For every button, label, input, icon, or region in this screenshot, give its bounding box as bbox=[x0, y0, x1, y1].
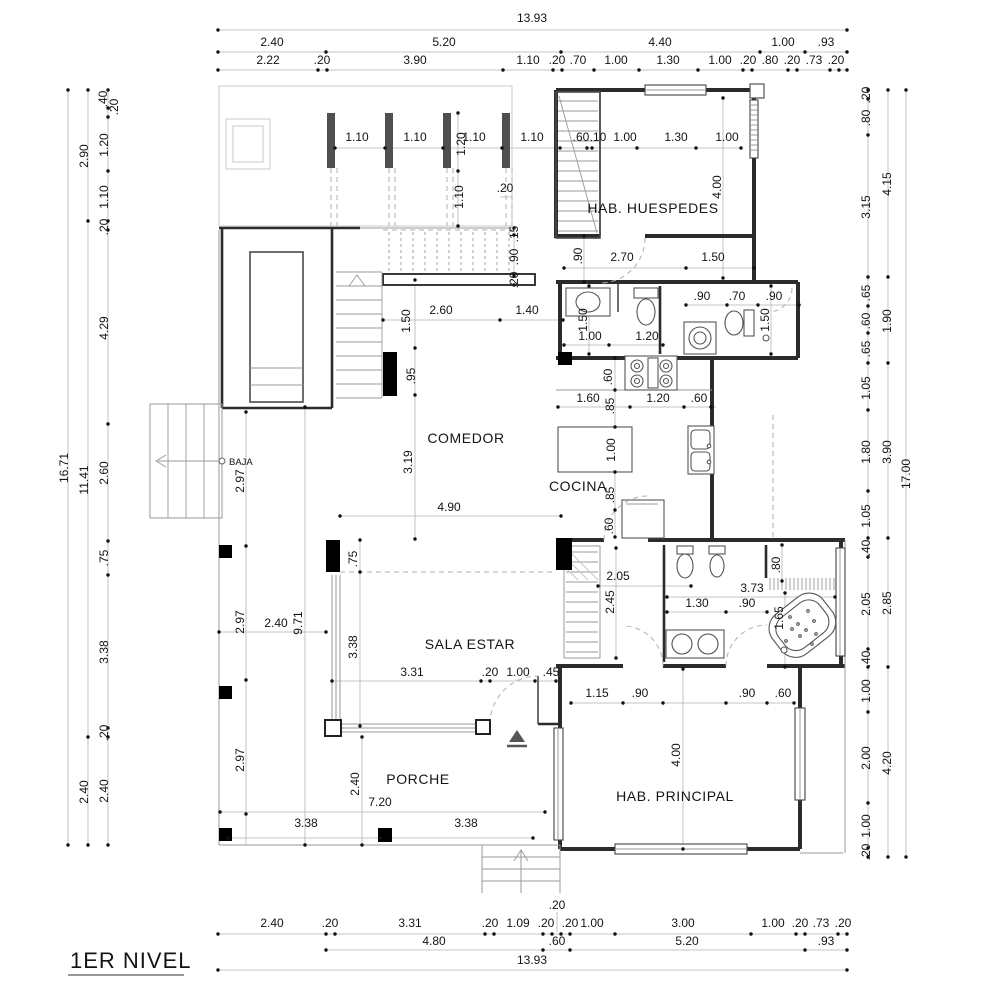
dim-tick bbox=[587, 284, 590, 287]
dim-label: .20 bbox=[562, 916, 579, 930]
dim-label: 2.40 bbox=[264, 616, 288, 630]
drain-icon bbox=[763, 335, 769, 341]
columns bbox=[219, 352, 572, 842]
dim-tick bbox=[558, 146, 561, 149]
dim-label: 2.85 bbox=[880, 591, 894, 615]
dim-tick bbox=[621, 701, 624, 704]
dim-tick bbox=[551, 68, 554, 71]
dim-tick bbox=[541, 932, 544, 935]
room-label-porche: PORCHE bbox=[386, 771, 450, 787]
dim-label: 2.60 bbox=[429, 303, 453, 317]
dim-label: 1.05 bbox=[859, 504, 873, 528]
dim-label: .93 bbox=[818, 934, 835, 948]
stair-exterior-baja bbox=[150, 404, 225, 518]
dim-label: 3.90 bbox=[880, 440, 894, 464]
dim-tick bbox=[696, 68, 699, 71]
dim-label: .20 bbox=[549, 53, 566, 67]
dim-label: 2.45 bbox=[603, 590, 617, 614]
dim-tick bbox=[303, 405, 306, 408]
dim-tick bbox=[780, 579, 783, 582]
dim-tick bbox=[613, 356, 616, 359]
stair-main bbox=[336, 272, 382, 398]
dim-label: .20 bbox=[538, 916, 555, 930]
dim-label: .20 bbox=[859, 843, 873, 860]
dim-label: .70 bbox=[729, 289, 746, 303]
dim-tick bbox=[721, 276, 724, 279]
dim-tick bbox=[562, 266, 565, 269]
dim-tick bbox=[803, 932, 806, 935]
dim-label: 1.00 bbox=[859, 679, 873, 703]
dim-label: 4.00 bbox=[710, 175, 724, 199]
dim-tick bbox=[324, 948, 327, 951]
dim-label: .20 bbox=[314, 53, 331, 67]
dim-tick bbox=[681, 667, 684, 670]
dim-label: .60 bbox=[573, 130, 590, 144]
dim-tick bbox=[845, 68, 848, 71]
dim-tick bbox=[66, 843, 69, 846]
dim-label: 1.00 bbox=[604, 53, 628, 67]
dimension-ticks bbox=[66, 28, 907, 971]
dim-tick bbox=[709, 405, 712, 408]
dim-label: 1.30 bbox=[685, 596, 709, 610]
dim-tick bbox=[456, 169, 459, 172]
dim-tick bbox=[216, 968, 219, 971]
dim-tick bbox=[330, 679, 333, 682]
dim-tick bbox=[585, 146, 588, 149]
dim-tick bbox=[613, 470, 616, 473]
dim-tick bbox=[333, 146, 336, 149]
floor-plan-drawing: 13.93 2.40 5.20 4.40 1.00 .93 2.22 .20 3… bbox=[0, 0, 1000, 1000]
dim-label: .90 bbox=[507, 248, 521, 265]
dim-tick bbox=[533, 679, 536, 682]
toilet-icon bbox=[725, 311, 743, 335]
dim-label: 1.10 bbox=[345, 130, 369, 144]
dim-label: 3.31 bbox=[398, 916, 422, 930]
dim-label: 1.10 bbox=[520, 130, 544, 144]
dim-tick bbox=[836, 932, 839, 935]
dim-tick bbox=[845, 50, 848, 53]
dim-label: 4.40 bbox=[648, 35, 672, 49]
dim-tick bbox=[324, 630, 327, 633]
dim-label: 1.20 bbox=[97, 133, 111, 157]
dim-tick bbox=[845, 948, 848, 951]
dim-tick bbox=[866, 647, 869, 650]
dim-tick bbox=[244, 544, 247, 547]
dim-tick bbox=[614, 546, 617, 549]
dim-label: .20 bbox=[322, 916, 339, 930]
dim-tick bbox=[613, 535, 616, 538]
dim-tick bbox=[613, 508, 616, 511]
dim-tick bbox=[739, 146, 742, 149]
dim-tick bbox=[886, 88, 889, 91]
dim-tick bbox=[66, 88, 69, 91]
dim-tick bbox=[483, 932, 486, 935]
entry-marker-icon bbox=[507, 730, 527, 746]
dim-label: 1.00 bbox=[715, 130, 739, 144]
dim-tick bbox=[86, 219, 89, 222]
dim-tick bbox=[106, 422, 109, 425]
dim-label: .20 bbox=[835, 916, 852, 930]
dim-tick bbox=[828, 68, 831, 71]
dim-tick bbox=[803, 948, 806, 951]
dim-label: 17.00 bbox=[899, 459, 913, 489]
stair-up-arrow-icon bbox=[349, 275, 365, 286]
dim-label: .20 bbox=[507, 271, 521, 288]
dim-tick bbox=[590, 146, 593, 149]
dim-tick bbox=[413, 346, 416, 349]
dim-tick bbox=[780, 543, 783, 546]
room-label-hab-huespedes: HAB. HUESPEDES bbox=[587, 200, 718, 216]
dim-label: 3.15 bbox=[859, 195, 873, 219]
stair-direction-label: BAJA bbox=[229, 457, 253, 468]
dim-tick bbox=[441, 146, 444, 149]
dim-tick bbox=[866, 536, 869, 539]
dim-label: 4.20 bbox=[880, 751, 894, 775]
dim-tick bbox=[866, 133, 869, 136]
dim-label: 1.00 bbox=[578, 329, 602, 343]
dim-label: .80 bbox=[859, 109, 873, 126]
dim-tick bbox=[413, 278, 416, 281]
dim-label: .20 bbox=[784, 53, 801, 67]
dim-label: 1.00 bbox=[859, 814, 873, 838]
dim-tick bbox=[582, 234, 585, 237]
dim-label: .20 bbox=[482, 916, 499, 930]
dim-label: .40 bbox=[859, 650, 873, 667]
dim-tick bbox=[378, 836, 381, 839]
dim-tick bbox=[786, 68, 789, 71]
dim-tick bbox=[613, 425, 616, 428]
dim-tick bbox=[904, 88, 907, 91]
dim-label: .90 bbox=[694, 289, 711, 303]
dim-tick bbox=[554, 679, 557, 682]
dim-label: 2.40 bbox=[260, 916, 284, 930]
dim-tick bbox=[500, 146, 503, 149]
toilet-tank bbox=[634, 288, 658, 298]
dim-label: 1.80 bbox=[859, 440, 873, 464]
dim-label: 3.38 bbox=[346, 635, 360, 659]
dim-label: .40 bbox=[859, 539, 873, 556]
dim-tick bbox=[724, 610, 727, 613]
dim-tick bbox=[613, 388, 616, 391]
dim-label: 1.15 bbox=[585, 686, 609, 700]
dim-label: 1.09 bbox=[506, 916, 530, 930]
dim-tick bbox=[560, 68, 563, 71]
dim-tick bbox=[358, 538, 361, 541]
toilet-icon bbox=[677, 554, 693, 578]
dim-tick bbox=[689, 584, 692, 587]
dim-label: .60 bbox=[549, 934, 566, 948]
dim-tick bbox=[324, 932, 327, 935]
dim-label: .60 bbox=[602, 517, 616, 534]
dim-tick bbox=[866, 710, 869, 713]
dim-label: .20 bbox=[740, 53, 757, 67]
dim-tick bbox=[333, 932, 336, 935]
dim-tick bbox=[492, 932, 495, 935]
dim-label: 2.05 bbox=[859, 592, 873, 616]
dim-label: 16.71 bbox=[57, 453, 71, 483]
dim-label: 1.00 bbox=[506, 665, 530, 679]
dim-tick bbox=[106, 843, 109, 846]
dim-label: .60 bbox=[775, 686, 792, 700]
dim-label: 1.30 bbox=[664, 130, 688, 144]
dim-tick bbox=[845, 968, 848, 971]
dim-label: 2.60 bbox=[97, 461, 111, 485]
dim-label: 3.38 bbox=[454, 816, 478, 830]
dim-tick bbox=[749, 932, 752, 935]
dim-tick bbox=[613, 932, 616, 935]
dim-tick bbox=[106, 169, 109, 172]
dim-label: 4.29 bbox=[97, 316, 111, 340]
dim-label: .93 bbox=[818, 35, 835, 49]
dim-tick bbox=[244, 678, 247, 681]
dim-label: 2.00 bbox=[859, 746, 873, 770]
dim-tick bbox=[886, 361, 889, 364]
dim-label: 2.22 bbox=[256, 53, 280, 67]
dim-label: .80 bbox=[762, 53, 779, 67]
toilet-icon bbox=[637, 299, 655, 325]
dim-label: .73 bbox=[813, 916, 830, 930]
dim-tick bbox=[592, 68, 595, 71]
dim-tick bbox=[769, 284, 772, 287]
dim-tick bbox=[783, 665, 786, 668]
dim-tick bbox=[794, 932, 797, 935]
dim-label: .65 bbox=[859, 340, 873, 357]
dim-tick bbox=[531, 836, 534, 839]
dim-tick bbox=[217, 630, 220, 633]
dim-tick bbox=[752, 266, 755, 269]
dim-tick bbox=[413, 537, 416, 540]
dim-tick bbox=[86, 88, 89, 91]
dim-label: .95 bbox=[404, 367, 418, 384]
dim-label: 1.00 bbox=[613, 130, 637, 144]
dim-label: 2.05 bbox=[606, 569, 630, 583]
dim-label: .80 bbox=[769, 556, 783, 573]
dim-tick bbox=[218, 810, 221, 813]
dim-tick bbox=[795, 68, 798, 71]
dim-tick bbox=[886, 855, 889, 858]
dim-tick bbox=[614, 656, 617, 659]
dim-tick bbox=[568, 932, 571, 935]
kitchen-island bbox=[558, 427, 632, 472]
dim-tick bbox=[769, 352, 772, 355]
toilet-tank bbox=[744, 310, 754, 336]
dim-label: 1.65 bbox=[772, 606, 786, 630]
dim-label: 4.90 bbox=[437, 500, 461, 514]
dim-tick bbox=[543, 810, 546, 813]
dim-tick bbox=[765, 701, 768, 704]
dim-tick bbox=[413, 393, 416, 396]
dim-label: 1.50 bbox=[399, 309, 413, 333]
dim-label: 1.20 bbox=[646, 391, 670, 405]
dim-label: 1.00 bbox=[580, 916, 604, 930]
dim-tick bbox=[562, 343, 565, 346]
dim-tick bbox=[866, 801, 869, 804]
dim-tick bbox=[845, 28, 848, 31]
porch-post bbox=[325, 720, 341, 736]
dim-label: 3.31 bbox=[400, 665, 424, 679]
dim-tick bbox=[721, 96, 724, 99]
sink-icon bbox=[672, 634, 692, 654]
dim-tick bbox=[86, 735, 89, 738]
dim-label: 7.20 bbox=[368, 795, 392, 809]
dim-label: 9.71 bbox=[291, 611, 305, 635]
dim-label: 1.10 bbox=[452, 185, 466, 209]
dim-label: .90 bbox=[571, 247, 585, 264]
dim-tick bbox=[866, 304, 869, 307]
dim-tick bbox=[741, 68, 744, 71]
dim-tick bbox=[694, 146, 697, 149]
dim-tick bbox=[587, 352, 590, 355]
dim-label: .20 bbox=[482, 665, 499, 679]
dim-label: 2.40 bbox=[77, 780, 91, 804]
dim-tick bbox=[86, 843, 89, 846]
dim-tick bbox=[541, 948, 544, 951]
dim-label: 1.90 bbox=[880, 309, 894, 333]
dim-tick bbox=[360, 735, 363, 738]
dim-label: .10 bbox=[590, 130, 607, 144]
dim-tick bbox=[886, 536, 889, 539]
dim-label: 2.70 bbox=[610, 250, 634, 264]
porch-post bbox=[476, 720, 490, 734]
dim-label: .60 bbox=[859, 312, 873, 329]
floor-plan-canvas: 13.93 2.40 5.20 4.40 1.00 .93 2.22 .20 3… bbox=[0, 0, 1000, 1000]
plan-title: 1ER NIVEL bbox=[70, 948, 192, 973]
dim-tick bbox=[556, 405, 559, 408]
dim-label: .20 bbox=[97, 218, 111, 235]
dim-label: .45 bbox=[543, 665, 560, 679]
dim-tick bbox=[725, 303, 728, 306]
dim-tick bbox=[837, 68, 840, 71]
dim-label: 1.05 bbox=[859, 376, 873, 400]
dim-tick bbox=[886, 665, 889, 668]
dim-label: 3.00 bbox=[671, 916, 695, 930]
dim-tick bbox=[866, 275, 869, 278]
dim-label: 2.40 bbox=[97, 779, 111, 803]
dim-tick bbox=[797, 303, 800, 306]
dim-label: 1.30 bbox=[656, 53, 680, 67]
dim-tick bbox=[216, 50, 219, 53]
dim-label: 3.73 bbox=[740, 581, 764, 595]
dim-label: .90 bbox=[739, 596, 756, 610]
dim-label: .75 bbox=[97, 549, 111, 566]
dim-tick bbox=[792, 701, 795, 704]
dim-tick bbox=[681, 847, 684, 850]
dim-tick bbox=[684, 303, 687, 306]
dimension-lines bbox=[68, 30, 906, 970]
dim-tick bbox=[607, 343, 610, 346]
room-label-cocina: COCINA bbox=[549, 478, 607, 494]
dim-tick bbox=[106, 539, 109, 542]
dim-tick bbox=[866, 331, 869, 334]
dim-tick bbox=[244, 410, 247, 413]
dim-tick bbox=[682, 405, 685, 408]
dim-tick bbox=[635, 146, 638, 149]
dim-tick bbox=[783, 591, 786, 594]
dim-tick bbox=[244, 812, 247, 815]
closet bbox=[250, 252, 303, 402]
kitchen bbox=[558, 356, 714, 538]
dim-tick bbox=[845, 932, 848, 935]
dim-tick bbox=[381, 318, 384, 321]
dim-label: 2.40 bbox=[348, 772, 362, 796]
room-label-hab-principal: HAB. PRINCIPAL bbox=[616, 788, 734, 804]
dim-tick bbox=[661, 701, 664, 704]
dim-label: 1.10 bbox=[516, 53, 540, 67]
dim-tick bbox=[456, 224, 459, 227]
dim-label: 2.90 bbox=[77, 144, 91, 168]
dim-label: 13.93 bbox=[517, 953, 547, 967]
dim-tick bbox=[383, 146, 386, 149]
dim-label: 3.38 bbox=[294, 816, 318, 830]
dim-label: .70 bbox=[570, 53, 587, 67]
dim-label: .20 bbox=[859, 86, 873, 103]
dim-label: .20 bbox=[828, 53, 845, 67]
dim-label: 2.97 bbox=[233, 610, 247, 634]
dim-tick bbox=[684, 266, 687, 269]
dim-tick bbox=[358, 570, 361, 573]
dim-tick bbox=[665, 610, 668, 613]
dim-label: .20 bbox=[497, 181, 514, 195]
dim-label: 3.19 bbox=[401, 450, 415, 474]
dim-label: .60 bbox=[691, 391, 708, 405]
dim-tick bbox=[665, 595, 668, 598]
dim-label: 13.93 bbox=[517, 11, 547, 25]
dim-label: 5.20 bbox=[432, 35, 456, 49]
dim-label: 1.40 bbox=[515, 303, 539, 317]
dim-tick bbox=[216, 932, 219, 935]
room-label-sala-estar: SALA ESTAR bbox=[425, 636, 516, 652]
dim-tick bbox=[886, 275, 889, 278]
dim-tick bbox=[637, 68, 640, 71]
dim-tick bbox=[498, 318, 501, 321]
dim-label: .85 bbox=[603, 397, 617, 414]
dim-tick bbox=[904, 855, 907, 858]
dim-label: 4.80 bbox=[422, 934, 446, 948]
dim-tick bbox=[833, 595, 836, 598]
dim-label: .15 bbox=[507, 225, 521, 242]
sink-icon bbox=[698, 634, 718, 654]
dim-label: 1.00 bbox=[708, 53, 732, 67]
dim-tick bbox=[303, 843, 306, 846]
dim-label: 1.20 bbox=[635, 329, 659, 343]
dim-label: 3.38 bbox=[97, 640, 111, 664]
dim-tick bbox=[582, 280, 585, 283]
dim-tick bbox=[569, 701, 572, 704]
dim-label: 1.50 bbox=[701, 250, 725, 264]
stair-upper-run-dashed bbox=[389, 232, 509, 272]
dim-label: 1.00 bbox=[604, 438, 618, 462]
bath2 bbox=[684, 310, 769, 354]
dim-tick bbox=[596, 584, 599, 587]
dim-tick bbox=[479, 679, 482, 682]
dim-label: 1.00 bbox=[761, 916, 785, 930]
dim-label: 1.10 bbox=[97, 185, 111, 209]
dim-tick bbox=[360, 843, 363, 846]
pergola-area bbox=[219, 86, 512, 226]
dim-tick bbox=[226, 836, 229, 839]
stairs bbox=[150, 92, 600, 893]
dim-tick bbox=[756, 303, 759, 306]
entry-steps bbox=[482, 845, 560, 893]
dim-label: .20 bbox=[107, 98, 121, 115]
dim-tick bbox=[488, 679, 491, 682]
dim-label: 1.50 bbox=[758, 308, 772, 332]
dim-label: .60 bbox=[601, 368, 615, 385]
dim-label: .20 bbox=[97, 724, 111, 741]
dim-label: 1.00 bbox=[771, 35, 795, 49]
dim-label: 2.97 bbox=[233, 469, 247, 493]
dim-label: 4.15 bbox=[880, 172, 894, 196]
